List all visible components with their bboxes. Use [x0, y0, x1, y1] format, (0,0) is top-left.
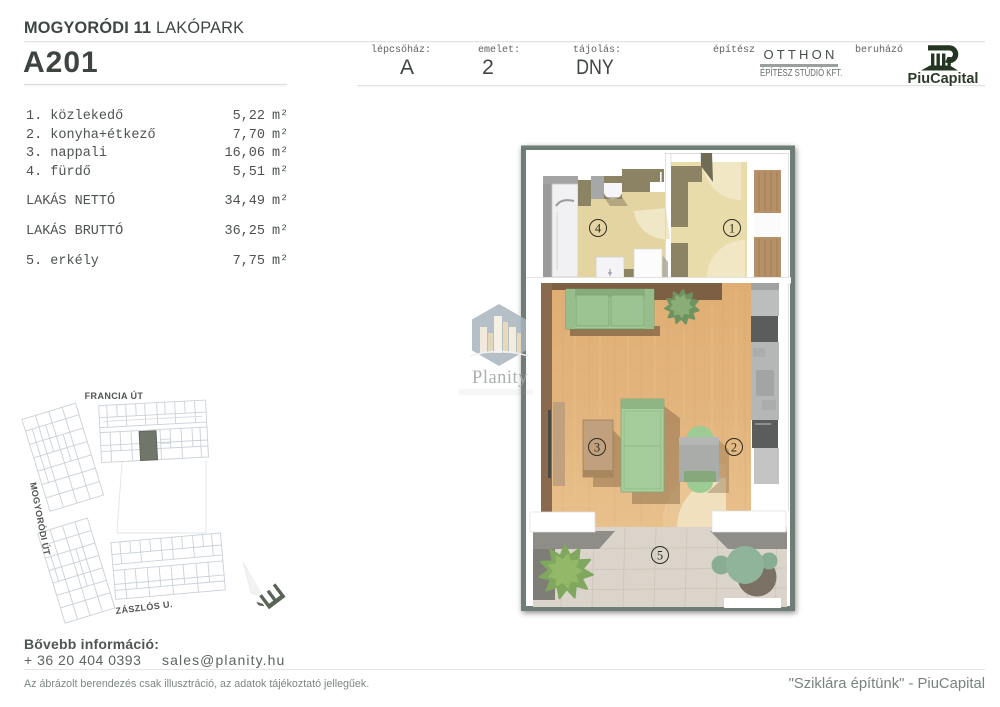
svg-text:É: É [253, 578, 292, 614]
svg-text:Planity: Planity [472, 368, 528, 388]
svg-text:5: 5 [657, 549, 663, 563]
svg-text:FRANCIA ÚT: FRANCIA ÚT [85, 390, 144, 401]
svg-text:4: 4 [595, 222, 602, 236]
svg-text:1: 1 [729, 222, 735, 236]
svg-text:MOGYORÓDI ÚT: MOGYORÓDI ÚT [28, 481, 53, 556]
svg-text:3: 3 [594, 441, 600, 455]
svg-text:ZÁSZLÓS U.: ZÁSZLÓS U. [115, 598, 173, 616]
svg-text:2: 2 [731, 441, 737, 455]
